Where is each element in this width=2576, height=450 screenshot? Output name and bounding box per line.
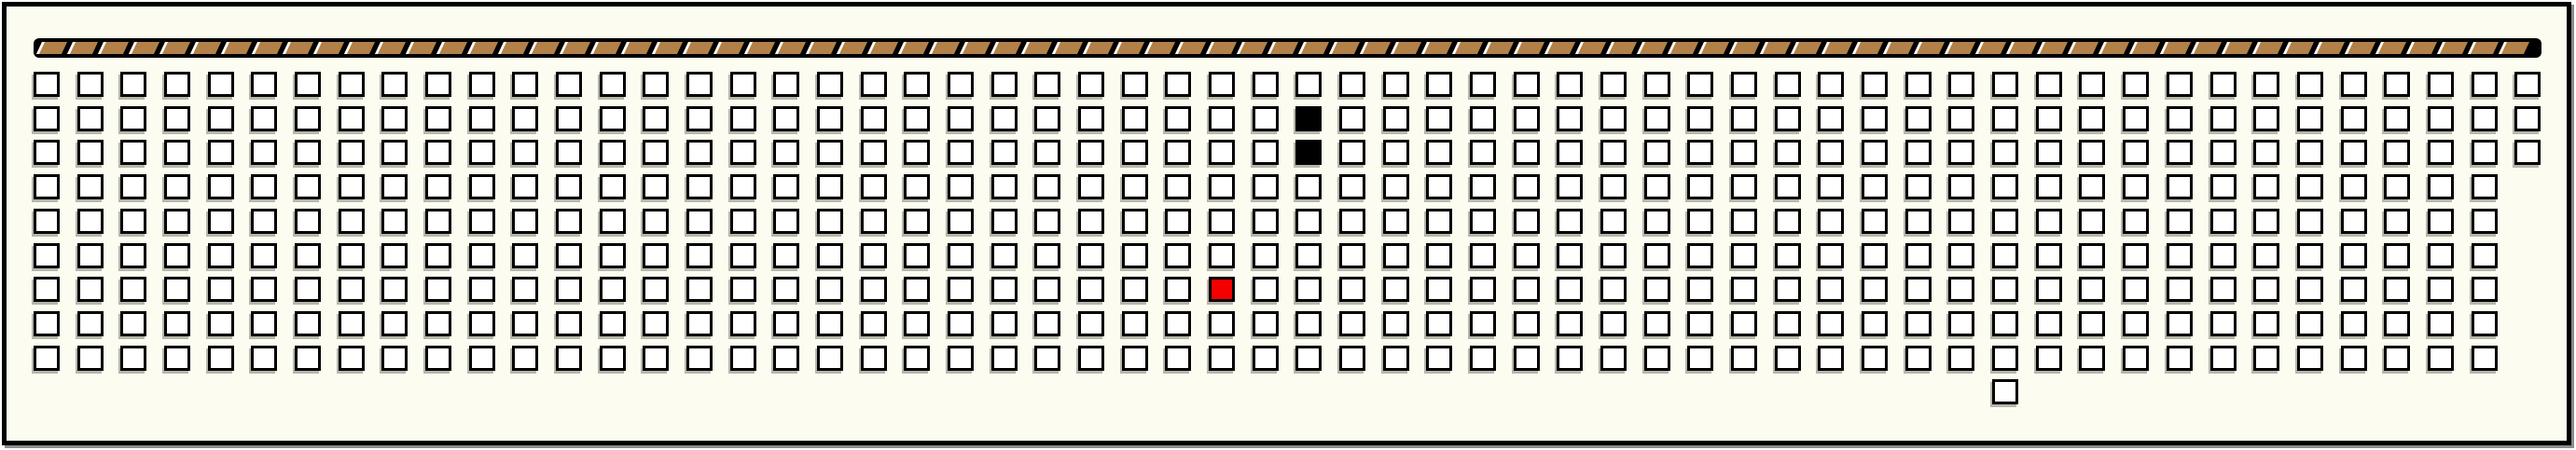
grid-cell[interactable] — [1426, 174, 1452, 199]
grid-cell[interactable] — [1209, 243, 1235, 268]
grid-cell[interactable] — [120, 311, 146, 336]
grid-cell[interactable] — [34, 72, 60, 97]
grid-cell[interactable] — [904, 140, 930, 165]
grid-cell[interactable] — [1600, 72, 1627, 97]
grid-cell[interactable] — [773, 277, 799, 302]
grid-cell[interactable] — [120, 106, 146, 131]
grid-cell[interactable] — [34, 174, 60, 199]
grid-cell[interactable] — [77, 277, 104, 302]
grid-cell[interactable] — [1295, 209, 1322, 234]
grid-cell[interactable] — [1731, 346, 1757, 371]
grid-cell[interactable] — [2472, 140, 2498, 165]
grid-cell[interactable] — [1209, 311, 1235, 336]
grid-cell[interactable] — [164, 243, 190, 268]
grid-cell[interactable] — [948, 311, 974, 336]
grid-cell[interactable] — [1383, 106, 1409, 131]
grid-cell[interactable] — [1905, 243, 1932, 268]
grid-cell[interactable] — [817, 106, 843, 131]
grid-cell[interactable] — [2297, 346, 2323, 371]
grid-cell[interactable] — [991, 277, 1018, 302]
grid-cell[interactable] — [512, 277, 538, 302]
grid-cell[interactable] — [643, 140, 669, 165]
grid-cell[interactable] — [991, 174, 1018, 199]
grid-cell[interactable] — [773, 243, 799, 268]
grid-cell[interactable] — [948, 243, 974, 268]
grid-cell[interactable] — [861, 346, 887, 371]
grid-cell[interactable] — [991, 243, 1018, 268]
grid-cell[interactable] — [251, 311, 277, 336]
grid-cell[interactable] — [861, 140, 887, 165]
grid-cell[interactable] — [1862, 72, 1888, 97]
grid-cell[interactable] — [1775, 243, 1801, 268]
grid-cell[interactable] — [1644, 72, 1670, 97]
grid-cell[interactable] — [1122, 311, 1148, 336]
grid-cell[interactable] — [1383, 311, 1409, 336]
grid-cell[interactable] — [77, 209, 104, 234]
grid-cell[interactable] — [1644, 140, 1670, 165]
grid-cell[interactable] — [34, 106, 60, 131]
grid-cell[interactable] — [817, 174, 843, 199]
grid-cell[interactable] — [1122, 72, 1148, 97]
grid-cell[interactable] — [2123, 243, 2149, 268]
grid-cell[interactable] — [2341, 72, 2367, 97]
grid-cell[interactable] — [1383, 346, 1409, 371]
grid-cell[interactable] — [2428, 106, 2454, 131]
grid-cell[interactable] — [1122, 174, 1148, 199]
grid-cell[interactable] — [1078, 243, 1104, 268]
grid-cell[interactable] — [2036, 140, 2062, 165]
grid-cell[interactable] — [164, 72, 190, 97]
grid-cell[interactable] — [381, 346, 408, 371]
grid-cell[interactable] — [512, 346, 538, 371]
grid-cell[interactable] — [600, 72, 626, 97]
grid-cell[interactable] — [991, 209, 1018, 234]
grid-cell[interactable] — [1818, 277, 1844, 302]
grid-cell[interactable] — [1426, 209, 1452, 234]
grid-cell[interactable] — [1992, 140, 2018, 165]
grid-cell[interactable] — [208, 311, 234, 336]
grid-cell[interactable] — [2472, 209, 2498, 234]
grid-cell[interactable] — [1165, 243, 1191, 268]
grid-cell[interactable] — [2253, 209, 2279, 234]
grid-cell[interactable] — [1905, 346, 1932, 371]
grid-cell[interactable] — [643, 243, 669, 268]
grid-cell[interactable] — [773, 106, 799, 131]
grid-cell[interactable] — [512, 140, 538, 165]
grid-cell[interactable] — [1600, 140, 1627, 165]
grid-cell[interactable] — [991, 346, 1018, 371]
grid-cell[interactable] — [1122, 243, 1148, 268]
grid-cell[interactable] — [1078, 277, 1104, 302]
grid-cell[interactable] — [686, 346, 713, 371]
grid-cell[interactable] — [773, 346, 799, 371]
grid-cell[interactable] — [2384, 243, 2410, 268]
grid-cell[interactable] — [1165, 72, 1191, 97]
grid-cell[interactable] — [861, 311, 887, 336]
grid-cell[interactable] — [1078, 140, 1104, 165]
grid-cell[interactable] — [2210, 174, 2237, 199]
grid-cell[interactable] — [1253, 140, 1279, 165]
grid-cell[interactable] — [2167, 106, 2193, 131]
grid-cell[interactable] — [1905, 277, 1932, 302]
grid-cell[interactable] — [208, 209, 234, 234]
grid-cell[interactable] — [1818, 174, 1844, 199]
grid-cell[interactable] — [1731, 72, 1757, 97]
grid-cell[interactable] — [1426, 311, 1452, 336]
grid-cell[interactable] — [295, 174, 321, 199]
grid-cell[interactable] — [1339, 243, 1365, 268]
grid-cell[interactable] — [164, 346, 190, 371]
grid-cell[interactable] — [77, 174, 104, 199]
grid-cell[interactable] — [556, 140, 582, 165]
grid-cell[interactable] — [1253, 243, 1279, 268]
grid-cell[interactable] — [600, 277, 626, 302]
grid-cell[interactable] — [2428, 140, 2454, 165]
grid-cell[interactable] — [1165, 140, 1191, 165]
grid-cell[interactable] — [686, 106, 713, 131]
grid-cell[interactable] — [2079, 140, 2105, 165]
grid-cell[interactable] — [686, 72, 713, 97]
grid-cell[interactable] — [1775, 209, 1801, 234]
grid-cell[interactable] — [1948, 311, 1974, 336]
grid-cell[interactable] — [469, 209, 495, 234]
grid-cell[interactable] — [1775, 277, 1801, 302]
grid-cell[interactable] — [1165, 209, 1191, 234]
grid-cell[interactable] — [469, 346, 495, 371]
grid-cell[interactable] — [817, 72, 843, 97]
grid-cell[interactable] — [2210, 311, 2237, 336]
grid-cell[interactable] — [1034, 346, 1060, 371]
grid-cell[interactable] — [1339, 106, 1365, 131]
grid-cell[interactable] — [469, 243, 495, 268]
grid-cell[interactable] — [1905, 311, 1932, 336]
grid-cell[interactable] — [1644, 243, 1670, 268]
grid-cell[interactable] — [556, 72, 582, 97]
grid-cell[interactable] — [2210, 106, 2237, 131]
grid-cell[interactable] — [1034, 106, 1060, 131]
grid-cell[interactable] — [2297, 174, 2323, 199]
grid-cell[interactable] — [1514, 209, 1540, 234]
grid-cell[interactable] — [1948, 174, 1974, 199]
grid-cell[interactable] — [164, 277, 190, 302]
grid-cell[interactable] — [1253, 346, 1279, 371]
grid-cell[interactable] — [339, 346, 365, 371]
grid-cell[interactable] — [556, 209, 582, 234]
grid-cell[interactable] — [1470, 346, 1496, 371]
grid-cell[interactable] — [1078, 311, 1104, 336]
grid-cell[interactable] — [381, 209, 408, 234]
grid-cell[interactable] — [730, 106, 756, 131]
grid-cell[interactable] — [2167, 174, 2193, 199]
grid-cell[interactable] — [1992, 311, 2018, 336]
grid-cell[interactable] — [34, 140, 60, 165]
grid-cell[interactable] — [861, 277, 887, 302]
grid-cell[interactable] — [469, 174, 495, 199]
grid-cell[interactable] — [34, 346, 60, 371]
grid-cell[interactable] — [1687, 72, 1713, 97]
grid-cell[interactable] — [1295, 277, 1322, 302]
grid-cell[interactable] — [1253, 277, 1279, 302]
grid-cell[interactable] — [904, 174, 930, 199]
grid-cell[interactable] — [1600, 209, 1627, 234]
grid-cell[interactable] — [904, 277, 930, 302]
grid-cell[interactable] — [1165, 346, 1191, 371]
grid-cell[interactable] — [686, 174, 713, 199]
grid-cell[interactable] — [600, 174, 626, 199]
grid-cell[interactable] — [469, 72, 495, 97]
grid-cell[interactable] — [1948, 140, 1974, 165]
grid-cell[interactable] — [600, 311, 626, 336]
grid-cell[interactable] — [773, 311, 799, 336]
grid-cell[interactable] — [34, 277, 60, 302]
grid-cell[interactable] — [2428, 346, 2454, 371]
grid-cell[interactable] — [2384, 277, 2410, 302]
grid-cell[interactable] — [381, 72, 408, 97]
grid-cell[interactable] — [2472, 277, 2498, 302]
grid-cell[interactable] — [773, 174, 799, 199]
grid-cell[interactable] — [1600, 311, 1627, 336]
grid-cell[interactable] — [425, 140, 451, 165]
grid-cell[interactable] — [1775, 72, 1801, 97]
grid-cell[interactable] — [1514, 174, 1540, 199]
grid-cell[interactable] — [77, 72, 104, 97]
grid-cell[interactable] — [2428, 243, 2454, 268]
grid-cell[interactable] — [120, 346, 146, 371]
grid-cell[interactable] — [1253, 106, 1279, 131]
grid-cell[interactable] — [251, 140, 277, 165]
grid-cell[interactable] — [1992, 379, 2018, 404]
grid-cell[interactable] — [817, 277, 843, 302]
grid-cell[interactable] — [730, 243, 756, 268]
grid-cell[interactable] — [948, 106, 974, 131]
grid-cell[interactable] — [1209, 140, 1235, 165]
grid-cell[interactable] — [1470, 106, 1496, 131]
grid-cell[interactable] — [2341, 106, 2367, 131]
grid-cell[interactable] — [2123, 72, 2149, 97]
grid-cell[interactable] — [1514, 72, 1540, 97]
grid-cell[interactable] — [1600, 106, 1627, 131]
grid-cell[interactable] — [339, 311, 365, 336]
grid-cell[interactable] — [1905, 140, 1932, 165]
grid-cell[interactable] — [686, 277, 713, 302]
grid-cell[interactable] — [2341, 140, 2367, 165]
grid-cell[interactable] — [1514, 311, 1540, 336]
grid-cell[interactable] — [2079, 72, 2105, 97]
grid-cell[interactable] — [1339, 209, 1365, 234]
grid-cell[interactable] — [1557, 243, 1583, 268]
grid-cell[interactable] — [817, 346, 843, 371]
grid-cell[interactable] — [1470, 243, 1496, 268]
grid-cell[interactable] — [1818, 140, 1844, 165]
grid-cell[interactable] — [2472, 174, 2498, 199]
grid-cell[interactable] — [469, 106, 495, 131]
grid-cell[interactable] — [2123, 346, 2149, 371]
grid-cell[interactable] — [600, 243, 626, 268]
grid-cell[interactable] — [643, 72, 669, 97]
grid-cell[interactable] — [2297, 311, 2323, 336]
grid-cell[interactable] — [2384, 174, 2410, 199]
grid-cell[interactable] — [164, 140, 190, 165]
grid-cell[interactable] — [861, 174, 887, 199]
grid-cell[interactable] — [1644, 277, 1670, 302]
grid-cell[interactable] — [1470, 277, 1496, 302]
grid-cell[interactable] — [77, 311, 104, 336]
grid-cell[interactable] — [861, 72, 887, 97]
grid-cell[interactable] — [425, 311, 451, 336]
grid-cell[interactable] — [120, 277, 146, 302]
grid-cell[interactable] — [1557, 209, 1583, 234]
grid-cell[interactable] — [1818, 311, 1844, 336]
grid-cell[interactable] — [1948, 72, 1974, 97]
grid-cell[interactable] — [730, 140, 756, 165]
grid-cell[interactable] — [2079, 311, 2105, 336]
grid-cell[interactable] — [904, 209, 930, 234]
grid-cell[interactable] — [251, 209, 277, 234]
grid-cell[interactable] — [1687, 243, 1713, 268]
grid-cell[interactable] — [2341, 277, 2367, 302]
grid-cell[interactable] — [1470, 311, 1496, 336]
grid-cell[interactable] — [1731, 277, 1757, 302]
grid-cell[interactable] — [948, 346, 974, 371]
grid-cell[interactable] — [1557, 311, 1583, 336]
grid-cell[interactable] — [643, 311, 669, 336]
grid-cell[interactable] — [1122, 106, 1148, 131]
grid-cell[interactable] — [600, 209, 626, 234]
grid-cell[interactable] — [164, 174, 190, 199]
grid-cell[interactable] — [1383, 174, 1409, 199]
grid-cell[interactable] — [381, 140, 408, 165]
grid-cell[interactable] — [512, 72, 538, 97]
grid-cell[interactable] — [34, 209, 60, 234]
grid-cell[interactable] — [1644, 311, 1670, 336]
grid-cell[interactable] — [1383, 72, 1409, 97]
grid-cell[interactable] — [1731, 140, 1757, 165]
grid-cell[interactable] — [339, 140, 365, 165]
grid-cell[interactable] — [425, 277, 451, 302]
grid-cell[interactable] — [730, 72, 756, 97]
grid-cell[interactable] — [643, 174, 669, 199]
grid-cell[interactable] — [381, 311, 408, 336]
grid-cell[interactable] — [1339, 140, 1365, 165]
grid-cell[interactable] — [1426, 243, 1452, 268]
grid-cell[interactable] — [1209, 174, 1235, 199]
grid-cell[interactable] — [2253, 311, 2279, 336]
grid-cell[interactable] — [730, 346, 756, 371]
grid-cell[interactable] — [948, 277, 974, 302]
grid-cell[interactable] — [1992, 243, 2018, 268]
grid-cell[interactable] — [1557, 346, 1583, 371]
grid-cell[interactable] — [2514, 72, 2541, 97]
grid-cell[interactable] — [2341, 174, 2367, 199]
grid-cell[interactable] — [1905, 106, 1932, 131]
grid-cell[interactable] — [120, 209, 146, 234]
grid-cell[interactable] — [730, 277, 756, 302]
grid-cell[interactable] — [1514, 277, 1540, 302]
grid-cell[interactable] — [1687, 346, 1713, 371]
grid-cell[interactable] — [904, 72, 930, 97]
grid-cell[interactable] — [2253, 140, 2279, 165]
grid-cell[interactable] — [556, 106, 582, 131]
grid-cell[interactable] — [2036, 174, 2062, 199]
grid-cell[interactable] — [948, 140, 974, 165]
grid-cell[interactable] — [120, 243, 146, 268]
grid-cell[interactable] — [164, 209, 190, 234]
grid-cell[interactable] — [77, 243, 104, 268]
grid-cell[interactable] — [1818, 106, 1844, 131]
grid-cell[interactable] — [1818, 243, 1844, 268]
grid-cell[interactable] — [425, 209, 451, 234]
grid-cell[interactable] — [1209, 346, 1235, 371]
grid-cell[interactable] — [600, 140, 626, 165]
grid-cell[interactable] — [2167, 277, 2193, 302]
grid-cell[interactable] — [1383, 140, 1409, 165]
grid-cell[interactable] — [208, 106, 234, 131]
grid-cell[interactable] — [251, 174, 277, 199]
grid-cell[interactable] — [2036, 277, 2062, 302]
grid-cell[interactable] — [1862, 277, 1888, 302]
grid-cell[interactable] — [1078, 346, 1104, 371]
grid-cell[interactable] — [686, 311, 713, 336]
grid-cell[interactable] — [556, 277, 582, 302]
grid-cell[interactable] — [1295, 311, 1322, 336]
grid-cell[interactable] — [2210, 209, 2237, 234]
grid-cell[interactable] — [2167, 346, 2193, 371]
grid-cell[interactable] — [295, 72, 321, 97]
grid-cell[interactable] — [295, 106, 321, 131]
grid-cell[interactable] — [817, 311, 843, 336]
grid-cell[interactable] — [1992, 277, 2018, 302]
grid-cell[interactable] — [1078, 72, 1104, 97]
grid-cell[interactable] — [295, 209, 321, 234]
grid-cell[interactable] — [1426, 72, 1452, 97]
grid-cell[interactable] — [2514, 106, 2541, 131]
grid-cell[interactable] — [2253, 174, 2279, 199]
grid-cell[interactable] — [1775, 174, 1801, 199]
grid-cell[interactable] — [904, 346, 930, 371]
grid-cell[interactable] — [1426, 140, 1452, 165]
grid-cell[interactable] — [1775, 346, 1801, 371]
grid-cell[interactable] — [2079, 346, 2105, 371]
grid-cell[interactable] — [1862, 106, 1888, 131]
grid-cell[interactable] — [686, 140, 713, 165]
grid-cell[interactable] — [686, 243, 713, 268]
grid-cell[interactable] — [295, 311, 321, 336]
grid-cell[interactable] — [1295, 243, 1322, 268]
grid-cell[interactable] — [2384, 346, 2410, 371]
grid-cell[interactable] — [1209, 209, 1235, 234]
grid-cell[interactable] — [1992, 174, 2018, 199]
grid-cell[interactable] — [1731, 311, 1757, 336]
grid-cell[interactable] — [1165, 311, 1191, 336]
grid-cell[interactable] — [1600, 277, 1627, 302]
grid-cell[interactable] — [512, 174, 538, 199]
grid-cell[interactable] — [1687, 277, 1713, 302]
grid-cell[interactable] — [1905, 72, 1932, 97]
grid-cell[interactable] — [1557, 72, 1583, 97]
grid-cell[interactable] — [1514, 106, 1540, 131]
grid-cell[interactable] — [2123, 311, 2149, 336]
grid-cell[interactable] — [2123, 209, 2149, 234]
grid-cell[interactable] — [2472, 106, 2498, 131]
grid-cell[interactable] — [1339, 174, 1365, 199]
grid-cell[interactable] — [1818, 346, 1844, 371]
grid-cell[interactable] — [1862, 311, 1888, 336]
grid-cell[interactable] — [425, 72, 451, 97]
grid-cell[interactable] — [1034, 140, 1060, 165]
grid-cell[interactable] — [1514, 140, 1540, 165]
grid-cell[interactable] — [556, 346, 582, 371]
grid-cell[interactable] — [2384, 140, 2410, 165]
